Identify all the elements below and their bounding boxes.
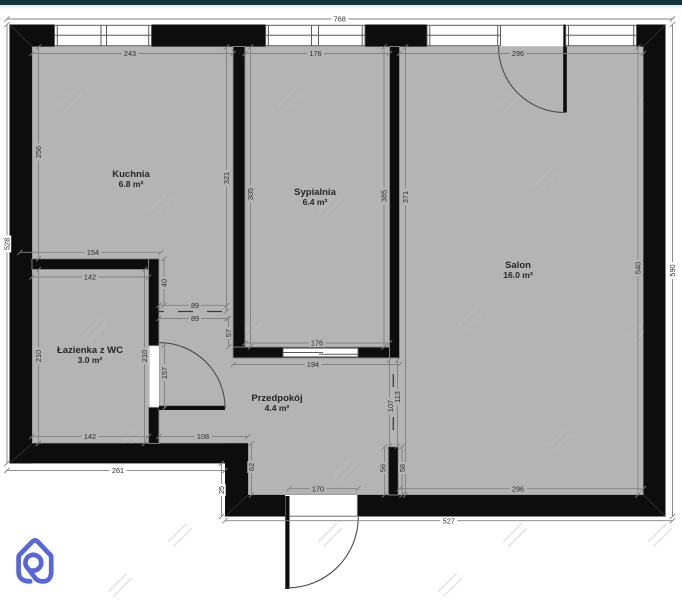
svg-text:176: 176: [311, 339, 323, 348]
svg-text:261: 261: [112, 466, 124, 475]
svg-text:305: 305: [246, 188, 255, 200]
svg-text:3.0 m²: 3.0 m²: [78, 355, 103, 365]
svg-text:210: 210: [140, 350, 149, 362]
svg-text:142: 142: [84, 273, 96, 282]
svg-text:540: 540: [634, 262, 643, 274]
svg-text:107: 107: [386, 400, 395, 412]
svg-text:385: 385: [380, 190, 389, 202]
svg-text:256: 256: [34, 146, 43, 158]
svg-text:6.8 m²: 6.8 m²: [119, 179, 144, 189]
svg-text:4.4 m²: 4.4 m²: [265, 403, 290, 413]
svg-text:527: 527: [443, 516, 455, 525]
svg-text:25: 25: [217, 486, 226, 494]
svg-text:56: 56: [379, 464, 388, 472]
svg-text:768: 768: [334, 15, 346, 24]
svg-text:56: 56: [398, 464, 407, 472]
svg-text:321: 321: [222, 172, 231, 184]
svg-text:157: 157: [160, 367, 169, 379]
svg-text:210: 210: [34, 350, 43, 362]
svg-text:170: 170: [312, 484, 324, 493]
svg-text:154: 154: [87, 248, 99, 257]
svg-text:108: 108: [197, 432, 209, 441]
svg-text:528: 528: [3, 238, 12, 250]
svg-text:371: 371: [401, 191, 410, 203]
svg-text:142: 142: [84, 432, 96, 441]
svg-text:89: 89: [191, 301, 199, 310]
svg-text:296: 296: [512, 49, 524, 58]
svg-text:6.4 m²: 6.4 m²: [303, 197, 328, 207]
svg-text:590: 590: [668, 264, 677, 276]
svg-text:296: 296: [512, 484, 524, 493]
svg-text:89: 89: [191, 314, 199, 323]
svg-text:176: 176: [309, 49, 321, 58]
svg-text:62: 62: [247, 463, 256, 471]
svg-text:194: 194: [307, 360, 319, 369]
svg-text:40: 40: [160, 279, 169, 287]
svg-text:243: 243: [124, 49, 136, 58]
svg-text:57: 57: [224, 329, 233, 337]
svg-text:16.0 m²: 16.0 m²: [503, 270, 533, 280]
